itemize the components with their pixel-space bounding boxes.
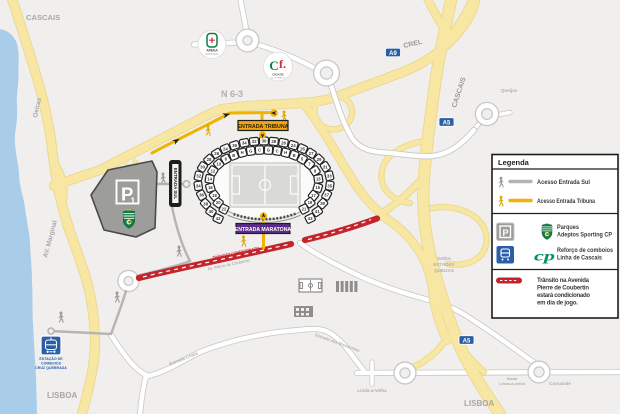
svg-text:Linda-a-Velha: Linda-a-Velha <box>357 388 387 393</box>
svg-text:41: 41 <box>315 209 320 214</box>
svg-text:em dia de jogo.: em dia de jogo. <box>537 301 578 307</box>
svg-text:ESTÁDIO/: ESTÁDIO/ <box>433 261 455 267</box>
svg-text:17: 17 <box>311 193 316 198</box>
svg-text:32: 32 <box>252 139 257 144</box>
svg-text:Trânsito na Avenida: Trânsito na Avenida <box>537 278 590 284</box>
svg-text:30: 30 <box>262 139 267 144</box>
svg-text:CRUZ QUEBRADA: CRUZ QUEBRADA <box>35 366 67 370</box>
svg-text:12: 12 <box>211 168 216 173</box>
svg-text:B: B <box>232 153 235 158</box>
svg-text:estará condicionado: estará condicionado <box>537 293 590 299</box>
svg-text:G: G <box>249 149 252 154</box>
svg-text:15: 15 <box>315 185 320 190</box>
svg-text:28: 28 <box>271 139 276 144</box>
svg-text:39: 39 <box>320 201 325 206</box>
svg-text:Carnaxide: Carnaxide <box>549 381 571 386</box>
svg-text:42: 42 <box>216 216 221 221</box>
svg-text:26: 26 <box>214 151 219 156</box>
svg-text:36: 36 <box>199 193 204 198</box>
svg-text:31: 31 <box>323 164 328 169</box>
svg-text:20: 20 <box>216 200 221 205</box>
svg-text:B: B <box>293 153 296 158</box>
svg-text:A9: A9 <box>389 51 397 57</box>
svg-text:COMBOIOS: COMBOIOS <box>41 362 62 366</box>
svg-text:1: 1 <box>131 196 136 206</box>
svg-text:DO FUTEBOL: DO FUTEBOL <box>271 78 286 80</box>
svg-text:27: 27 <box>309 151 314 156</box>
svg-text:25: 25 <box>300 146 305 151</box>
svg-text:35: 35 <box>327 183 332 188</box>
svg-text:28: 28 <box>207 157 212 162</box>
svg-text:H: H <box>241 150 244 155</box>
svg-text:LISBOA: LISBOA <box>464 399 494 408</box>
svg-text:PORTUGAL: PORTUGAL <box>205 53 219 56</box>
svg-text:14: 14 <box>207 177 212 182</box>
svg-text:33: 33 <box>327 173 332 178</box>
svg-text:Linha de Cascais: Linha de Cascais <box>557 256 603 262</box>
svg-text:36: 36 <box>232 143 237 148</box>
svg-text:CASCAIS: CASCAIS <box>26 13 60 22</box>
svg-text:26: 26 <box>281 140 286 145</box>
svg-text:32: 32 <box>196 174 201 179</box>
svg-text:cp: cp <box>534 249 555 264</box>
svg-text:16: 16 <box>208 185 213 190</box>
svg-text:C: C <box>276 148 279 153</box>
svg-text:ENTRADA MARATONA: ENTRADA MARATONA <box>235 227 292 233</box>
svg-text:ESTAÇÃO DE: ESTAÇÃO DE <box>39 356 63 361</box>
svg-text:f.: f. <box>279 57 286 71</box>
svg-text:40: 40 <box>209 209 214 214</box>
svg-text:29: 29 <box>317 157 322 162</box>
svg-text:Parques: Parques <box>557 225 580 231</box>
svg-text:Pierre de Coubertin: Pierre de Coubertin <box>537 286 589 292</box>
svg-text:SAÍDA: SAÍDA <box>437 254 452 261</box>
svg-text:LISBOA: LISBOA <box>47 391 77 400</box>
svg-text:ENTRADA TRIBUNA: ENTRADA TRIBUNA <box>237 124 288 130</box>
svg-text:N 6-3: N 6-3 <box>221 89 243 99</box>
svg-text:G: G <box>267 148 270 153</box>
svg-text:P: P <box>503 228 509 238</box>
svg-text:Acesso Entrada Sul: Acesso Entrada Sul <box>537 180 590 186</box>
svg-text:Reforço de comboios: Reforço de comboios <box>557 248 614 254</box>
svg-text:Queijas: Queijas <box>501 88 518 93</box>
svg-text:24: 24 <box>223 146 228 151</box>
svg-text:38: 38 <box>203 201 208 206</box>
svg-text:Acesso Entrada Tribuna: Acesso Entrada Tribuna <box>537 199 596 205</box>
svg-text:Legenda: Legenda <box>498 158 530 167</box>
svg-text:34: 34 <box>196 183 201 188</box>
svg-text:A5: A5 <box>463 338 471 344</box>
svg-text:C: C <box>258 148 261 153</box>
svg-text:19: 19 <box>308 200 313 205</box>
svg-text:ARENA: ARENA <box>206 49 218 53</box>
svg-text:CIDADE: CIDADE <box>272 73 284 77</box>
svg-text:QUEIJAS: QUEIJAS <box>434 268 454 273</box>
svg-text:13: 13 <box>316 176 321 181</box>
svg-text:43: 43 <box>308 216 313 221</box>
svg-text:ENTRADA SUL: ENTRADA SUL <box>173 168 178 200</box>
svg-text:22: 22 <box>222 207 227 212</box>
svg-text:Adeptos Sporting CP: Adeptos Sporting CP <box>557 233 612 239</box>
svg-text:A5: A5 <box>443 120 451 126</box>
svg-text:H: H <box>284 150 287 155</box>
svg-text:34: 34 <box>242 141 247 146</box>
svg-text:30: 30 <box>200 165 205 170</box>
svg-text:10: 10 <box>216 162 221 167</box>
svg-text:Linda-a-velha: Linda-a-velha <box>499 381 526 386</box>
svg-text:C: C <box>269 58 278 73</box>
svg-text:21: 21 <box>302 207 307 212</box>
svg-text:18: 18 <box>212 193 217 198</box>
svg-text:37: 37 <box>324 193 329 198</box>
svg-text:24: 24 <box>291 143 296 148</box>
